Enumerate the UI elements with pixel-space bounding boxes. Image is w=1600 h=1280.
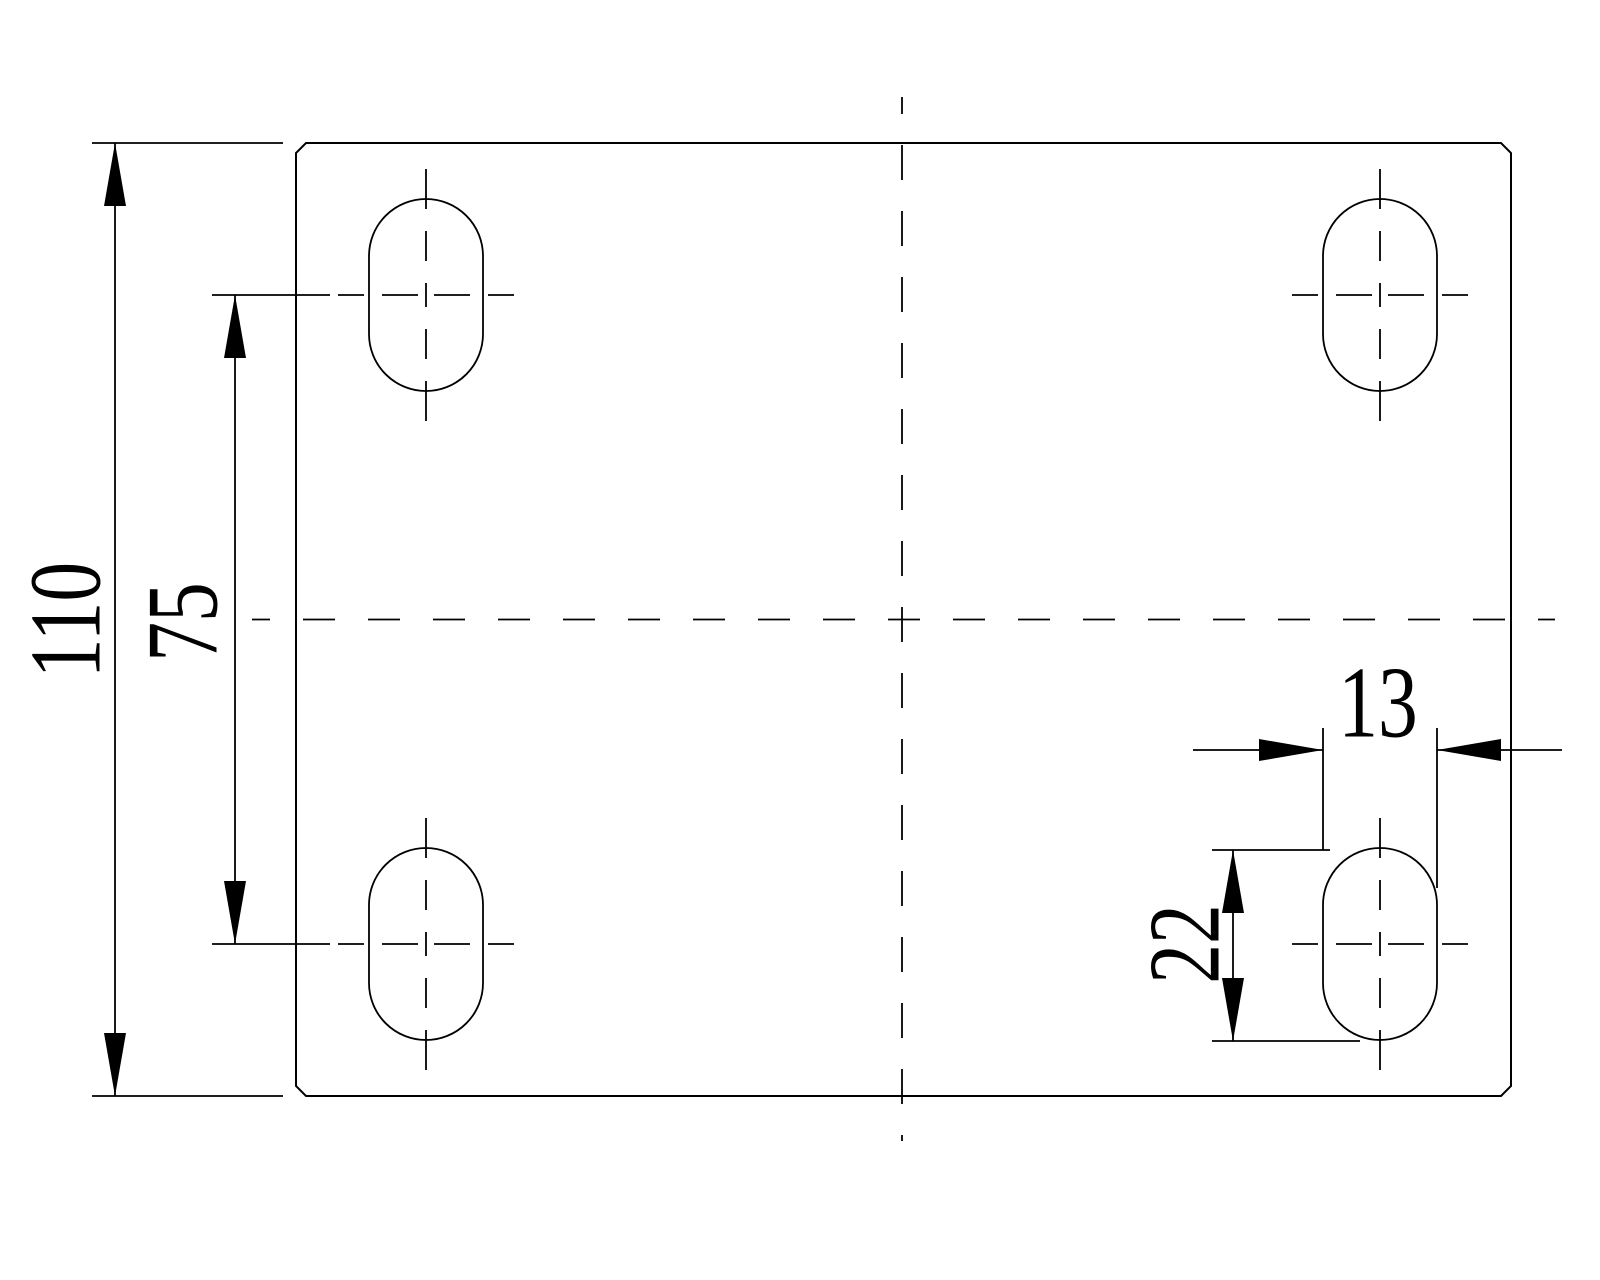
dimension-row-spacing: 75 — [125, 295, 330, 944]
engineering-drawing-canvas: 110 75 13 22 — [0, 0, 1600, 1280]
dim-22-arrow-down-icon — [1222, 978, 1244, 1041]
dim-75-arrow-down-icon — [224, 881, 246, 944]
dim-110-arrow-up-icon — [104, 143, 126, 206]
dim-13-arrow-left-icon — [1437, 739, 1501, 761]
dimension-slot-width: 13 — [1193, 645, 1562, 888]
dim-110-arrow-down-icon — [104, 1033, 126, 1096]
dim-75-arrow-up-icon — [224, 295, 246, 358]
dimension-slot-length: 22 — [1127, 850, 1360, 1041]
mounting-plate-drawing: 110 75 13 22 — [0, 0, 1600, 1280]
main-centerlines — [252, 97, 1555, 1141]
dim-13-arrow-right-icon — [1259, 739, 1323, 761]
dim-110-label: 110 — [8, 562, 122, 678]
dim-22-label: 22 — [1127, 904, 1241, 984]
dim-75-label: 75 — [125, 582, 239, 662]
dim-22-arrow-up-icon — [1222, 850, 1244, 913]
dim-13-label: 13 — [1338, 645, 1418, 759]
